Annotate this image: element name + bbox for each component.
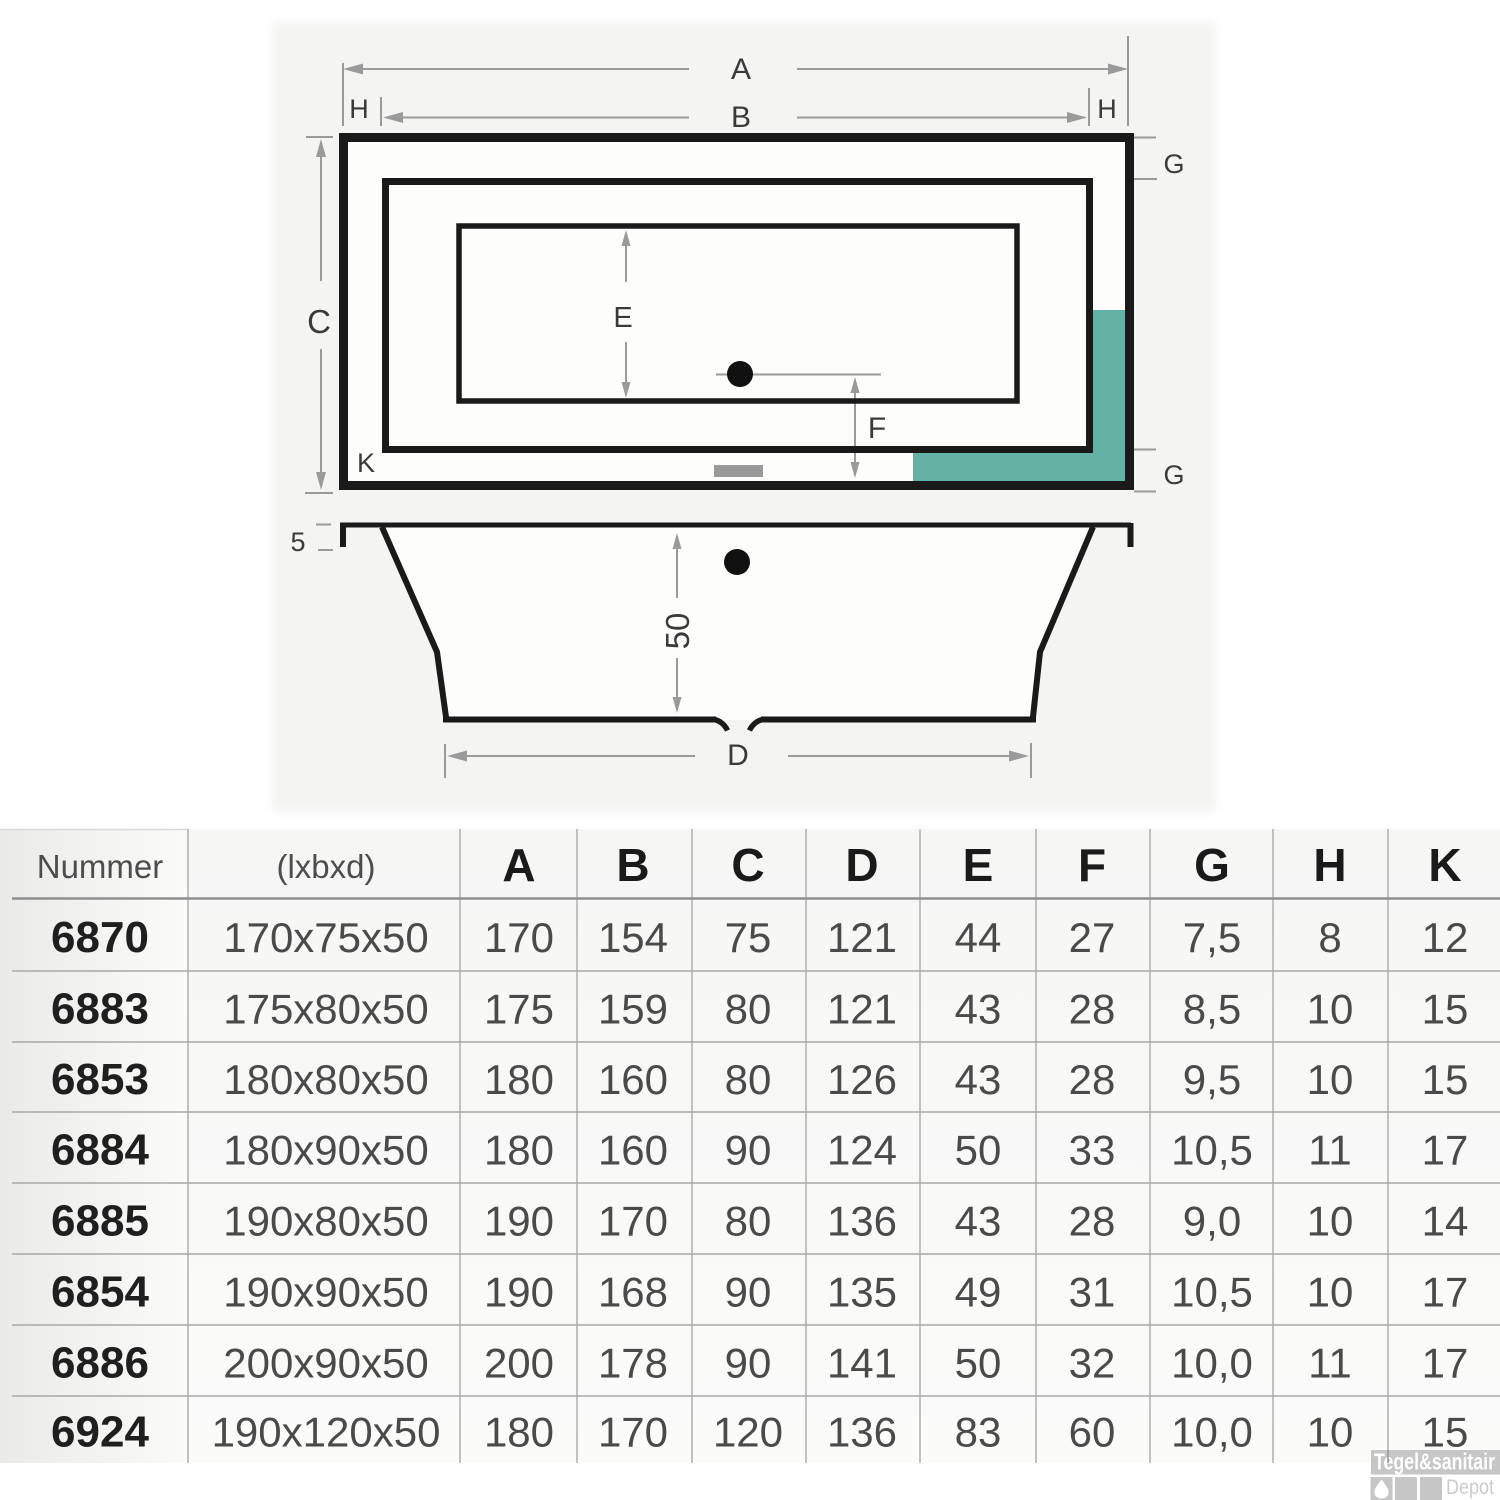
svg-text:D: D	[845, 839, 878, 891]
svg-text:80: 80	[725, 986, 772, 1033]
svg-text:6853: 6853	[51, 1055, 149, 1104]
svg-text:10,0: 10,0	[1171, 1340, 1253, 1387]
svg-text:17: 17	[1422, 1269, 1469, 1316]
svg-text:11: 11	[1308, 1340, 1352, 1387]
svg-text:80: 80	[725, 1198, 772, 1245]
svg-text:180x80x50: 180x80x50	[223, 1056, 429, 1103]
svg-text:200x90x50: 200x90x50	[223, 1340, 429, 1387]
svg-text:180: 180	[484, 1127, 554, 1174]
svg-text:136: 136	[827, 1409, 897, 1456]
svg-text:G: G	[1194, 839, 1230, 891]
svg-text:50: 50	[955, 1127, 1002, 1174]
svg-text:G: G	[1163, 149, 1184, 179]
svg-text:160: 160	[598, 1056, 668, 1103]
svg-text:121: 121	[827, 986, 897, 1033]
svg-text:178: 178	[598, 1340, 668, 1387]
svg-text:12: 12	[1422, 914, 1469, 961]
svg-text:83: 83	[955, 1409, 1002, 1456]
svg-text:6883: 6883	[51, 985, 149, 1034]
svg-text:E: E	[963, 839, 994, 891]
svg-text:49: 49	[955, 1269, 1002, 1316]
svg-text:6870: 6870	[51, 913, 149, 962]
svg-text:D: D	[727, 739, 749, 772]
svg-text:6885: 6885	[51, 1197, 149, 1246]
svg-text:Depot: Depot	[1446, 1476, 1494, 1499]
svg-text:43: 43	[955, 986, 1002, 1033]
svg-text:126: 126	[827, 1056, 897, 1103]
svg-text:8,5: 8,5	[1183, 986, 1241, 1033]
svg-text:F: F	[1078, 839, 1106, 891]
svg-text:15: 15	[1422, 1056, 1469, 1103]
svg-text:90: 90	[725, 1340, 772, 1387]
svg-text:50: 50	[659, 613, 696, 650]
svg-text:17: 17	[1422, 1340, 1469, 1387]
svg-text:H: H	[1097, 94, 1117, 124]
svg-text:17: 17	[1422, 1127, 1469, 1174]
svg-text:15: 15	[1422, 986, 1469, 1033]
svg-text:A: A	[502, 839, 535, 891]
svg-text:170x75x50: 170x75x50	[223, 914, 429, 961]
svg-text:27: 27	[1069, 914, 1116, 961]
svg-text:60: 60	[1069, 1409, 1116, 1456]
svg-text:F: F	[868, 412, 886, 445]
svg-text:K: K	[1428, 839, 1461, 891]
svg-text:170: 170	[598, 1198, 668, 1245]
svg-text:180: 180	[484, 1056, 554, 1103]
svg-text:5: 5	[290, 527, 305, 557]
svg-text:H: H	[1313, 839, 1346, 891]
svg-text:43: 43	[955, 1056, 1002, 1103]
svg-text:9,0: 9,0	[1183, 1198, 1241, 1245]
svg-text:10: 10	[1307, 1409, 1354, 1456]
svg-text:(lxbxd): (lxbxd)	[276, 848, 375, 885]
svg-text:K: K	[357, 448, 375, 478]
svg-text:6854: 6854	[51, 1268, 149, 1317]
svg-text:B: B	[731, 101, 751, 134]
svg-text:C: C	[307, 303, 331, 340]
svg-text:Nummer: Nummer	[37, 848, 164, 885]
svg-text:8: 8	[1318, 914, 1341, 961]
svg-text:200: 200	[484, 1340, 554, 1387]
svg-text:10: 10	[1307, 986, 1354, 1033]
svg-text:90: 90	[725, 1269, 772, 1316]
svg-text:10: 10	[1307, 1056, 1354, 1103]
svg-text:6884: 6884	[51, 1126, 149, 1175]
svg-text:6886: 6886	[51, 1339, 149, 1388]
svg-text:31: 31	[1069, 1269, 1116, 1316]
svg-text:121: 121	[827, 914, 897, 961]
svg-text:190x80x50: 190x80x50	[223, 1198, 429, 1245]
svg-text:43: 43	[955, 1198, 1002, 1245]
svg-text:44: 44	[955, 914, 1002, 961]
svg-text:7,5: 7,5	[1183, 914, 1241, 961]
svg-text:28: 28	[1069, 986, 1116, 1033]
svg-text:159: 159	[598, 986, 668, 1033]
svg-text:14: 14	[1422, 1198, 1469, 1245]
svg-text:E: E	[613, 302, 632, 334]
svg-text:190: 190	[484, 1198, 554, 1245]
svg-text:141: 141	[827, 1340, 897, 1387]
svg-text:180: 180	[484, 1409, 554, 1456]
svg-text:10,0: 10,0	[1171, 1409, 1253, 1456]
svg-text:190x120x50: 190x120x50	[212, 1409, 441, 1456]
svg-text:168: 168	[598, 1269, 668, 1316]
svg-text:33: 33	[1069, 1127, 1116, 1174]
svg-text:135: 135	[827, 1269, 897, 1316]
svg-text:180x90x50: 180x90x50	[223, 1127, 429, 1174]
svg-text:136: 136	[827, 1198, 897, 1245]
svg-text:Tegel&sanitair: Tegel&sanitair	[1374, 1449, 1495, 1475]
svg-text:124: 124	[827, 1127, 897, 1174]
svg-text:B: B	[616, 839, 649, 891]
svg-text:175: 175	[484, 986, 554, 1033]
svg-text:170: 170	[598, 1409, 668, 1456]
svg-text:28: 28	[1069, 1198, 1116, 1245]
svg-text:A: A	[731, 53, 751, 86]
svg-text:10,5: 10,5	[1171, 1127, 1253, 1174]
svg-text:190x90x50: 190x90x50	[223, 1269, 429, 1316]
svg-text:C: C	[731, 839, 764, 891]
svg-text:6924: 6924	[51, 1408, 149, 1457]
svg-text:H: H	[349, 94, 369, 124]
svg-text:175x80x50: 175x80x50	[223, 986, 429, 1033]
svg-text:11: 11	[1308, 1127, 1352, 1174]
svg-text:75: 75	[725, 914, 772, 961]
svg-text:9,5: 9,5	[1183, 1056, 1241, 1103]
svg-text:80: 80	[725, 1056, 772, 1103]
svg-text:50: 50	[955, 1340, 1002, 1387]
svg-text:10: 10	[1307, 1269, 1354, 1316]
svg-text:190: 190	[484, 1269, 554, 1316]
svg-text:28: 28	[1069, 1056, 1116, 1103]
svg-text:10: 10	[1307, 1198, 1354, 1245]
svg-text:32: 32	[1069, 1340, 1116, 1387]
svg-text:154: 154	[598, 914, 668, 961]
svg-text:160: 160	[598, 1127, 668, 1174]
svg-text:170: 170	[484, 914, 554, 961]
svg-text:10,5: 10,5	[1171, 1269, 1253, 1316]
svg-text:G: G	[1163, 460, 1184, 490]
svg-text:90: 90	[725, 1127, 772, 1174]
svg-text:120: 120	[713, 1409, 783, 1456]
